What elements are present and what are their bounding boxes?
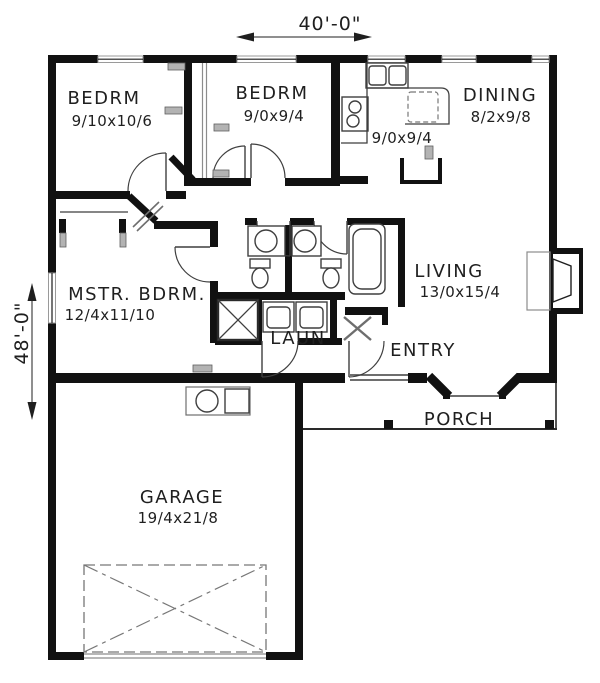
label-bedroom2-size: 9/0x9/4 (244, 107, 305, 125)
water-heater (196, 390, 218, 412)
label-dining-name: DINING (463, 85, 537, 106)
window-bedroom1 (98, 56, 143, 63)
label-entry-name: ENTRY (390, 340, 456, 361)
label-dining-size: 8/2x9/8 (471, 108, 532, 126)
label-master-bedroom-name: MSTR. BDRM. (68, 284, 206, 305)
label-living-name: LIVING (414, 261, 483, 282)
utility-area (186, 387, 250, 415)
label-bedroom2-name: BEDRM (235, 83, 308, 104)
floor-plan-drawing: 40'-0" 48'-0" BEDRM 9/10x10/6 BEDRM 9/0x… (0, 0, 600, 683)
registers (60, 63, 229, 372)
vanity-sink (294, 230, 316, 252)
label-bedroom1-name: BEDRM (67, 88, 140, 109)
dimension-height-label: 48'-0" (11, 301, 33, 364)
toilet-tank (321, 259, 341, 268)
firebox (553, 259, 571, 302)
toilet-tank (250, 259, 270, 268)
dryer-inner (300, 307, 323, 328)
kitchen-sink (366, 63, 408, 88)
label-garage-size: 19/4x21/8 (138, 509, 219, 527)
kitchen-fixtures (341, 63, 449, 182)
porch-post-left (384, 420, 393, 429)
window-dining-1 (442, 56, 476, 63)
hall-bath (248, 226, 285, 288)
door-entry-hall (349, 341, 384, 377)
label-bedroom1-size: 9/10x10/6 (72, 112, 153, 130)
toilet-bowl (323, 268, 339, 288)
vanity-sink (255, 230, 277, 252)
toilet-bowl (252, 268, 268, 288)
label-porch-name: PORCH (424, 409, 494, 430)
vent-kitchen (425, 146, 433, 159)
label-kitchen-size: 9/0x9/4 (372, 129, 433, 147)
pantry (402, 158, 440, 182)
door-bedroom1 (128, 153, 166, 191)
window-master-bedroom (49, 273, 56, 323)
window-kitchen (368, 56, 405, 63)
label-living-size: 13/0x15/4 (420, 283, 501, 301)
entry-closet-bifold (344, 317, 371, 340)
shower (218, 300, 258, 340)
window-bedroom2 (237, 56, 296, 63)
hearth (527, 252, 550, 310)
porch-post-right (545, 420, 554, 429)
label-garage-name: GARAGE (140, 487, 224, 508)
window-dining-2 (532, 56, 549, 63)
door-bedroom2 (251, 144, 285, 178)
master-bath (292, 224, 385, 294)
furnace (225, 389, 249, 413)
label-master-bedroom-size: 12/4x11/10 (65, 306, 156, 324)
dimension-width-label: 40'-0" (298, 13, 361, 35)
floor-plan: 40'-0" 48'-0" BEDRM 9/10x10/6 BEDRM 9/0x… (0, 0, 600, 683)
range (342, 97, 368, 131)
bathtub-inner (353, 229, 381, 289)
fireplace (527, 248, 583, 314)
dishwasher (408, 92, 438, 122)
label-laundry-name: LAUN (270, 328, 325, 349)
washer-inner (267, 307, 290, 328)
door-master-bedroom (175, 247, 210, 282)
